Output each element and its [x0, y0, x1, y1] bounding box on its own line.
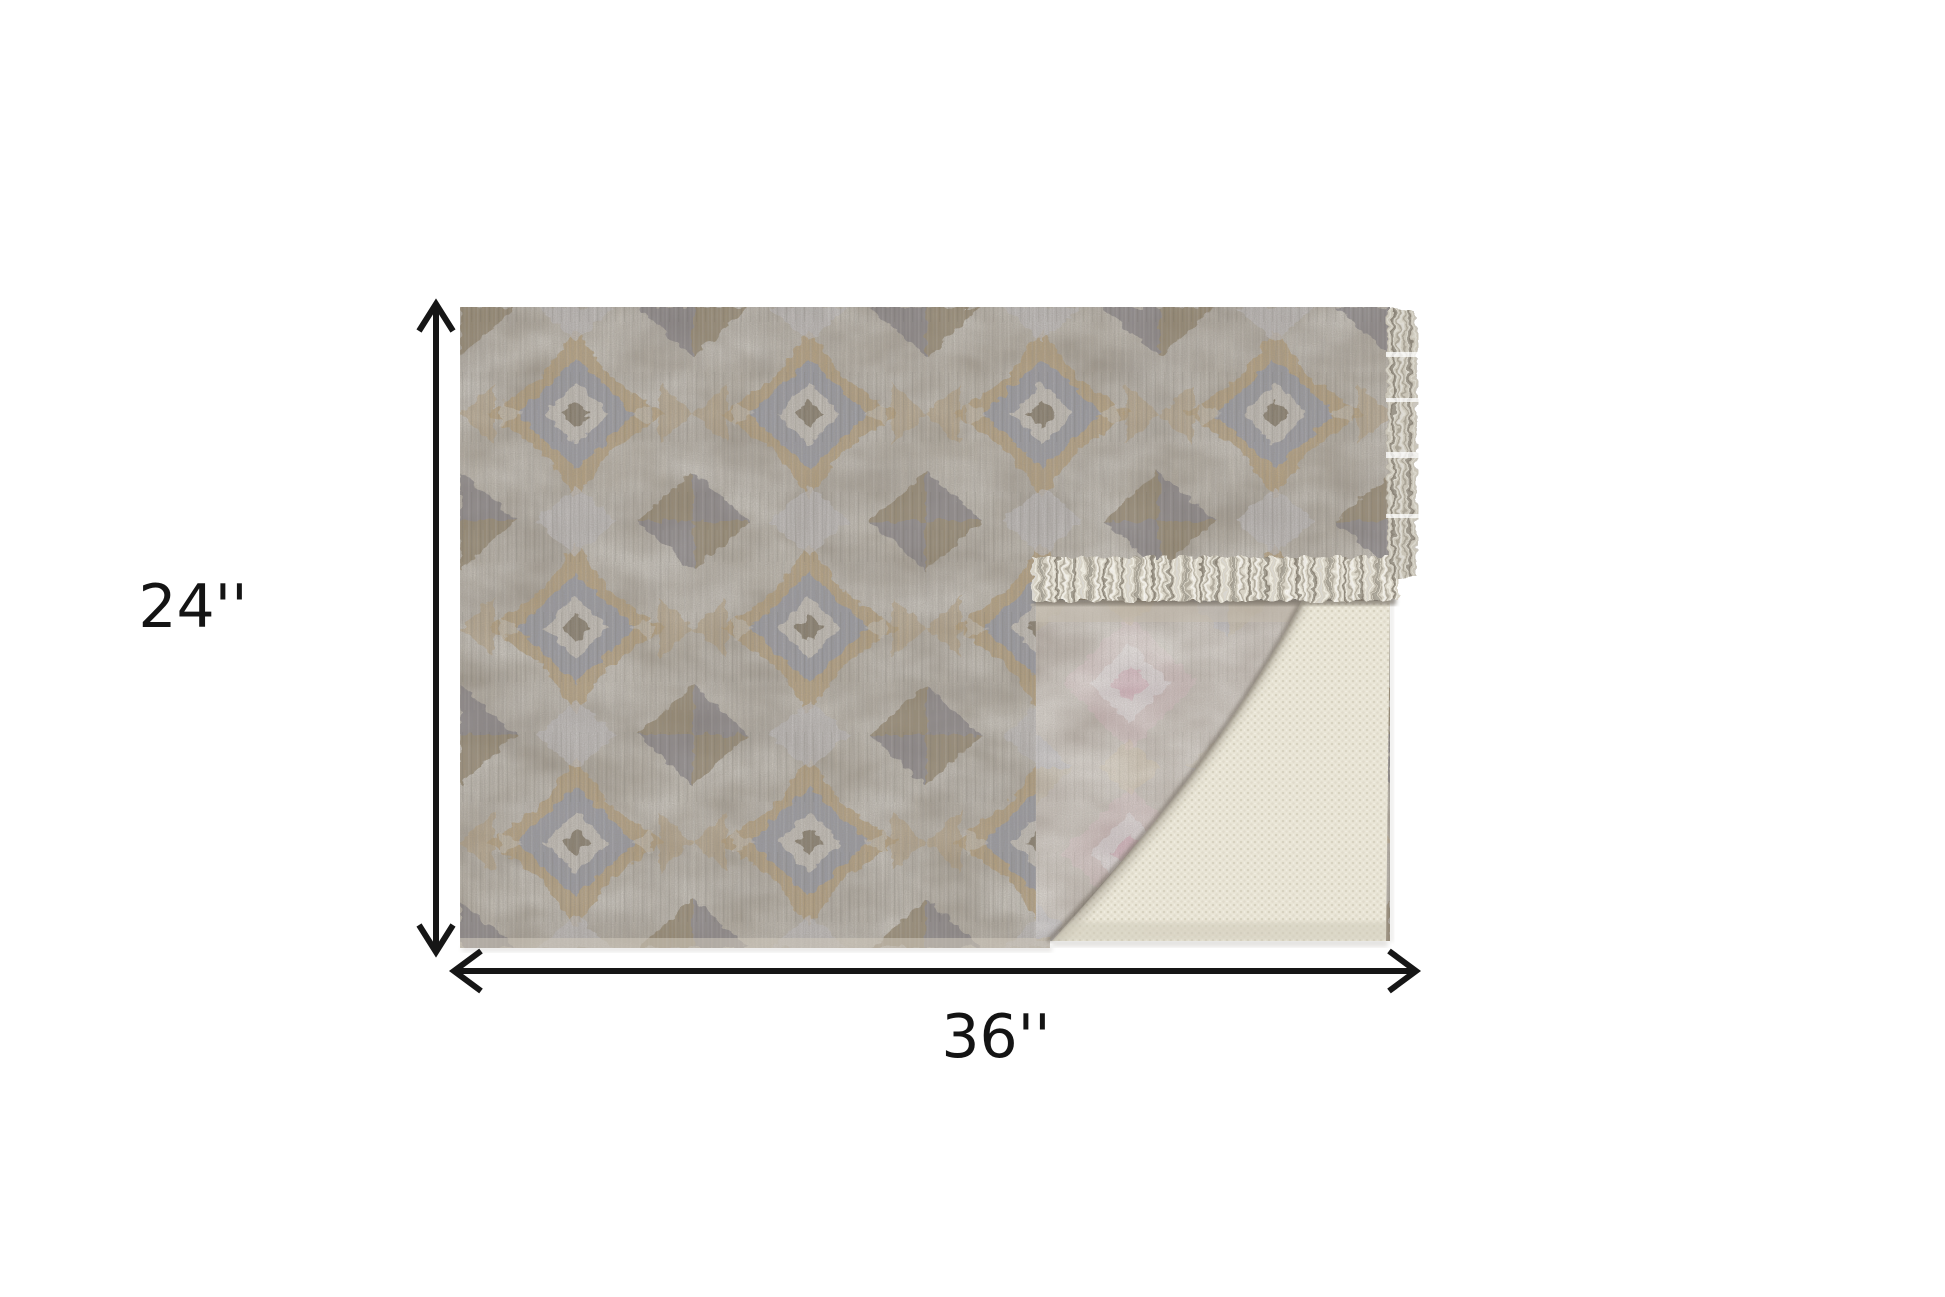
right-fringe: [1386, 310, 1422, 578]
pad-bottom-shading: [1052, 922, 1390, 941]
height-dimension-arrow: [419, 304, 453, 952]
rug-scene: [0, 0, 1945, 1297]
fold-fringe: [1032, 557, 1398, 605]
height-dimension-label: 24'': [108, 573, 278, 641]
width-dimension-arrow: [454, 951, 1416, 991]
width-dimension-label: 36'': [903, 1003, 1089, 1071]
product-dimension-diagram: 24'' 36'': [0, 0, 1945, 1297]
rug-bottom-selvage: [460, 938, 1050, 948]
